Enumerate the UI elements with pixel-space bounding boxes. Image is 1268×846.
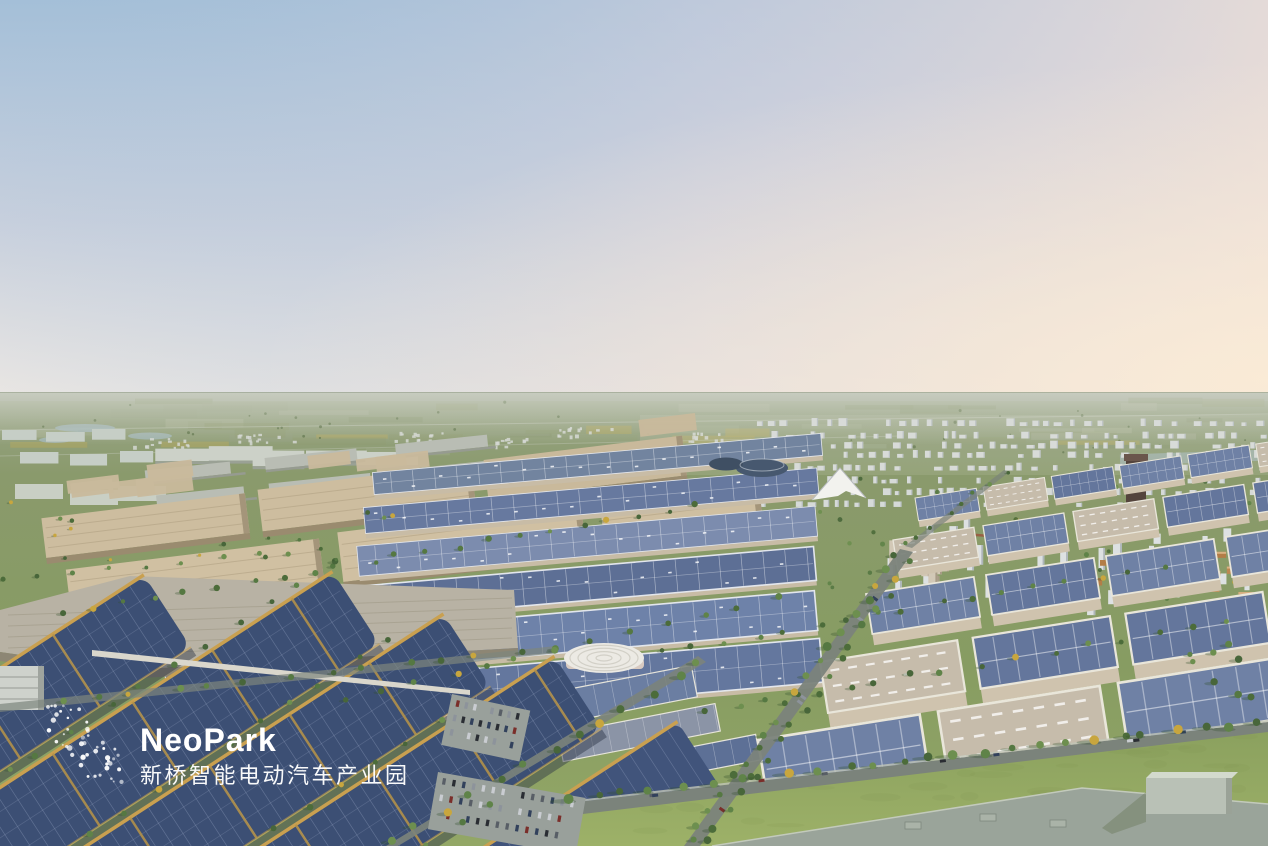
lawn-mottle bbox=[633, 828, 668, 834]
tree bbox=[882, 565, 890, 573]
logo-dot bbox=[50, 705, 53, 708]
skylight bbox=[647, 535, 651, 537]
tree bbox=[924, 752, 933, 761]
block-shade bbox=[802, 501, 803, 507]
tree bbox=[1136, 731, 1144, 739]
tree bbox=[1107, 549, 1111, 553]
tree bbox=[221, 542, 226, 547]
tree bbox=[153, 596, 158, 601]
tree bbox=[816, 691, 822, 697]
skylight bbox=[607, 466, 611, 468]
skylight bbox=[439, 475, 443, 477]
logo-dot bbox=[105, 766, 110, 771]
tree bbox=[802, 672, 809, 679]
logo-dot bbox=[62, 744, 64, 746]
tree bbox=[603, 517, 609, 523]
tree bbox=[179, 561, 183, 565]
tree bbox=[32, 753, 38, 759]
tree bbox=[1190, 659, 1195, 664]
block-shade bbox=[911, 490, 912, 495]
tree bbox=[121, 599, 125, 603]
skylight bbox=[703, 532, 707, 534]
tree bbox=[852, 610, 860, 618]
skylight bbox=[467, 477, 471, 479]
tree bbox=[728, 807, 734, 813]
tree bbox=[898, 609, 904, 615]
skylight bbox=[710, 497, 714, 499]
tree bbox=[907, 670, 914, 677]
skylight bbox=[626, 500, 630, 502]
skylight bbox=[664, 614, 668, 616]
tree bbox=[785, 768, 794, 777]
neopark-logo: NeoPark 新桥智能电动汽车产业园 bbox=[40, 700, 410, 794]
skylight bbox=[524, 621, 528, 623]
logo-dot bbox=[53, 704, 56, 707]
tree bbox=[950, 511, 954, 515]
tree bbox=[519, 649, 525, 655]
tree bbox=[765, 758, 771, 764]
shed bbox=[70, 454, 107, 466]
tree bbox=[312, 570, 318, 576]
skylight bbox=[737, 481, 741, 483]
skylight bbox=[725, 582, 729, 584]
skylight bbox=[534, 535, 538, 537]
skylight bbox=[579, 466, 583, 468]
skylight bbox=[774, 446, 778, 448]
round-building-roof bbox=[564, 643, 644, 673]
tree bbox=[388, 837, 396, 845]
tree bbox=[63, 556, 67, 560]
skylight bbox=[562, 531, 566, 533]
lawn-mottle bbox=[676, 803, 704, 812]
tree bbox=[660, 648, 665, 653]
tree bbox=[221, 554, 226, 559]
logo-dot bbox=[87, 734, 90, 737]
tree bbox=[627, 628, 633, 634]
tree bbox=[564, 794, 574, 804]
lawn-mottle bbox=[1230, 785, 1246, 793]
tree bbox=[499, 776, 506, 783]
block-shade bbox=[920, 488, 921, 495]
logo-dot bbox=[59, 710, 62, 713]
tree bbox=[1210, 649, 1216, 655]
lawn-mottle bbox=[767, 823, 805, 827]
block-shade bbox=[858, 503, 859, 507]
lawn-mottle bbox=[970, 771, 1013, 778]
tree bbox=[587, 638, 593, 644]
tree bbox=[903, 541, 907, 545]
skylight bbox=[523, 469, 527, 471]
skylight bbox=[693, 630, 697, 632]
skylight bbox=[508, 553, 512, 555]
tree bbox=[358, 665, 364, 671]
tree bbox=[1234, 691, 1242, 699]
skylight bbox=[528, 576, 532, 578]
skylight bbox=[690, 456, 694, 458]
tree bbox=[980, 664, 985, 669]
tree bbox=[582, 523, 588, 529]
tree bbox=[782, 700, 788, 706]
tree bbox=[668, 510, 672, 514]
tree bbox=[411, 679, 417, 685]
tree bbox=[837, 628, 845, 636]
logo-subtitle: 新桥智能电动汽车产业园 bbox=[140, 765, 410, 787]
tree bbox=[202, 644, 208, 650]
skylight bbox=[397, 566, 401, 568]
tree bbox=[391, 551, 397, 557]
tree bbox=[616, 705, 624, 713]
tree bbox=[1119, 640, 1124, 645]
tree bbox=[70, 518, 74, 522]
tree bbox=[298, 538, 302, 542]
skylight bbox=[402, 517, 406, 519]
tree bbox=[487, 801, 494, 808]
tree bbox=[53, 534, 56, 537]
tree bbox=[409, 822, 416, 829]
distant-town-block bbox=[145, 445, 149, 449]
skylight bbox=[480, 560, 484, 562]
tree bbox=[294, 583, 299, 588]
skylight bbox=[717, 446, 721, 448]
residential-block bbox=[890, 479, 898, 483]
logo-dot bbox=[86, 729, 90, 733]
skylight bbox=[719, 606, 723, 608]
tree bbox=[858, 621, 865, 628]
tree bbox=[319, 547, 323, 551]
tree bbox=[358, 654, 363, 659]
tree bbox=[239, 679, 246, 686]
shed bbox=[155, 449, 217, 462]
tree bbox=[1098, 568, 1102, 572]
tree bbox=[70, 571, 75, 576]
lawn-mottle bbox=[1148, 745, 1191, 750]
tree bbox=[692, 501, 698, 507]
tree bbox=[738, 774, 746, 782]
tree bbox=[827, 674, 832, 679]
tree bbox=[374, 560, 378, 564]
logo-dot bbox=[93, 775, 96, 778]
logo-dot bbox=[62, 705, 65, 708]
tree bbox=[743, 762, 749, 768]
tree bbox=[866, 596, 874, 604]
shed bbox=[46, 432, 85, 442]
tree bbox=[847, 541, 851, 545]
block-shade bbox=[898, 491, 899, 495]
logo-dot bbox=[79, 763, 84, 768]
skylight bbox=[750, 681, 754, 683]
tree bbox=[705, 808, 711, 814]
skylight bbox=[664, 657, 668, 659]
tree bbox=[1054, 651, 1059, 656]
skylight bbox=[640, 576, 644, 578]
skylight bbox=[653, 486, 657, 488]
block-shade bbox=[857, 476, 858, 483]
tower-shade bbox=[1103, 548, 1105, 570]
tree bbox=[692, 822, 699, 829]
logo-dot bbox=[96, 746, 99, 749]
tree bbox=[107, 566, 111, 570]
tree bbox=[267, 537, 270, 540]
tree bbox=[1224, 619, 1229, 624]
skylight bbox=[753, 577, 757, 579]
tree bbox=[1235, 655, 1242, 662]
logo-dot bbox=[70, 753, 74, 757]
skylight bbox=[374, 512, 378, 514]
logo-dot bbox=[54, 712, 59, 717]
logo-dot bbox=[105, 755, 110, 760]
tree bbox=[1036, 741, 1044, 749]
logo-dot bbox=[46, 705, 50, 709]
tree bbox=[948, 750, 958, 760]
rooftop-vent bbox=[980, 814, 996, 821]
skylight bbox=[780, 563, 784, 565]
tree bbox=[872, 583, 878, 589]
tree bbox=[144, 566, 148, 570]
distant-town-block bbox=[133, 446, 137, 450]
shed bbox=[20, 452, 58, 464]
skylight bbox=[681, 492, 685, 494]
block-shade bbox=[1081, 503, 1082, 507]
small-building-top bbox=[1146, 772, 1238, 778]
tree bbox=[470, 653, 476, 659]
skylight bbox=[494, 465, 498, 467]
tree bbox=[179, 589, 185, 595]
tree bbox=[754, 774, 761, 781]
skylight bbox=[695, 561, 699, 563]
logo-dot bbox=[81, 736, 85, 740]
tree bbox=[253, 578, 258, 583]
tree bbox=[757, 745, 763, 751]
skylight bbox=[431, 518, 435, 520]
tree bbox=[1084, 552, 1089, 557]
lawn-mottle bbox=[960, 792, 978, 801]
tree bbox=[914, 535, 918, 539]
logo-dot bbox=[105, 762, 108, 765]
logo-dot bbox=[85, 721, 88, 724]
tree bbox=[828, 581, 832, 585]
tree bbox=[1210, 678, 1217, 685]
logo-dot bbox=[77, 707, 81, 711]
block-shade bbox=[900, 501, 901, 506]
block-shade bbox=[979, 478, 980, 484]
tree bbox=[270, 599, 275, 604]
skylight bbox=[731, 530, 735, 532]
tree bbox=[257, 551, 262, 556]
tree bbox=[1173, 725, 1182, 734]
lawn-mottle bbox=[1203, 763, 1239, 768]
tree bbox=[820, 622, 825, 627]
logo-dot bbox=[119, 780, 123, 784]
tree bbox=[704, 836, 712, 844]
tree bbox=[439, 717, 445, 723]
tree bbox=[868, 570, 872, 574]
tree bbox=[902, 758, 908, 764]
skylight bbox=[765, 484, 769, 486]
tree bbox=[722, 641, 727, 646]
block-shade bbox=[876, 476, 877, 483]
tree bbox=[551, 647, 558, 654]
residential-block bbox=[883, 488, 891, 495]
logo-dot bbox=[101, 741, 105, 745]
tree bbox=[198, 554, 201, 557]
skylight bbox=[496, 673, 500, 675]
skylight bbox=[500, 577, 504, 579]
shed bbox=[120, 451, 153, 462]
skylight bbox=[514, 511, 518, 513]
logo-dot bbox=[112, 757, 115, 760]
tree bbox=[858, 477, 862, 481]
logo-dot bbox=[67, 717, 70, 720]
skylight bbox=[383, 478, 387, 480]
tree bbox=[390, 513, 395, 518]
block-shade bbox=[1224, 479, 1225, 484]
tree bbox=[871, 530, 875, 534]
tree bbox=[486, 535, 492, 541]
logo-dot bbox=[51, 718, 56, 723]
tree bbox=[8, 767, 13, 772]
tree bbox=[315, 683, 320, 688]
block-shade bbox=[874, 499, 875, 507]
logo-dot bbox=[113, 748, 116, 751]
skylight bbox=[597, 496, 601, 498]
tree bbox=[595, 719, 604, 728]
logo-dot bbox=[80, 755, 85, 760]
tree bbox=[109, 558, 112, 561]
tree bbox=[870, 680, 876, 686]
logo-dot bbox=[113, 781, 115, 783]
tree bbox=[708, 825, 716, 833]
logo-dot bbox=[102, 747, 105, 750]
tree bbox=[1030, 583, 1035, 588]
tree bbox=[702, 708, 708, 714]
skylight bbox=[608, 618, 612, 620]
tree bbox=[458, 546, 464, 552]
lawn-mottle bbox=[908, 782, 947, 791]
tree bbox=[1, 577, 6, 582]
arena-roof bbox=[709, 458, 743, 471]
tree bbox=[733, 605, 739, 611]
logo-text-block: NeoPark 新桥智能电动汽车产业园 bbox=[140, 724, 410, 787]
skylight bbox=[581, 632, 585, 634]
tree bbox=[838, 517, 843, 522]
tree bbox=[87, 831, 93, 837]
skylight bbox=[412, 485, 416, 487]
tree bbox=[643, 787, 651, 795]
tree bbox=[959, 502, 963, 506]
tree bbox=[907, 558, 913, 564]
tree bbox=[456, 671, 462, 677]
skylight bbox=[570, 506, 574, 508]
logo-dot bbox=[116, 754, 119, 757]
tree bbox=[597, 792, 603, 798]
lawn-mottle bbox=[932, 795, 955, 801]
logo-dot bbox=[82, 741, 86, 745]
tree bbox=[121, 811, 127, 817]
tree bbox=[171, 661, 177, 667]
tree bbox=[334, 558, 337, 561]
skylight bbox=[554, 639, 558, 641]
tree bbox=[1163, 565, 1168, 570]
tree bbox=[554, 746, 562, 754]
tree bbox=[690, 836, 696, 842]
tree bbox=[408, 659, 415, 666]
tree bbox=[1225, 641, 1232, 648]
tree bbox=[970, 596, 976, 602]
tree bbox=[804, 707, 811, 714]
skylight bbox=[676, 543, 680, 545]
tree bbox=[677, 671, 686, 680]
tree bbox=[464, 791, 471, 798]
tree bbox=[651, 691, 659, 699]
skylight bbox=[486, 513, 490, 515]
tree bbox=[288, 674, 294, 680]
skylight bbox=[777, 626, 781, 628]
block-shade bbox=[838, 500, 839, 507]
skylight bbox=[424, 558, 428, 560]
tower-shade bbox=[981, 545, 983, 565]
tree bbox=[892, 576, 899, 583]
logo-dot bbox=[47, 728, 51, 732]
tree bbox=[665, 620, 671, 626]
tree bbox=[762, 697, 767, 702]
tree bbox=[365, 510, 370, 515]
tree bbox=[758, 635, 763, 640]
tree bbox=[999, 590, 1004, 595]
tree bbox=[1085, 640, 1091, 646]
tree bbox=[823, 642, 832, 651]
block-shade bbox=[828, 500, 829, 507]
tree bbox=[872, 605, 879, 612]
lawn-mottle bbox=[1056, 763, 1078, 768]
tree bbox=[890, 552, 896, 558]
block-shade bbox=[885, 480, 886, 484]
tree bbox=[1061, 579, 1066, 584]
tree bbox=[214, 585, 220, 591]
skylight bbox=[452, 558, 456, 560]
sunset-glow bbox=[0, 0, 1268, 397]
tree bbox=[518, 533, 523, 538]
lawn-mottle bbox=[860, 793, 901, 801]
logo-dot bbox=[70, 709, 72, 711]
shed bbox=[2, 430, 37, 440]
tree bbox=[880, 542, 885, 547]
tree bbox=[843, 617, 849, 623]
logo-dot bbox=[87, 775, 90, 778]
tree bbox=[786, 721, 792, 727]
block-shade bbox=[941, 477, 942, 483]
tree bbox=[282, 575, 288, 581]
logo-dot bbox=[65, 745, 68, 748]
tree bbox=[692, 659, 699, 666]
tree bbox=[459, 819, 466, 826]
skylight bbox=[802, 450, 806, 452]
tree bbox=[760, 732, 767, 739]
tree bbox=[35, 574, 40, 579]
tree bbox=[848, 762, 856, 770]
tree bbox=[271, 825, 277, 831]
block-shade bbox=[910, 476, 911, 483]
tree bbox=[869, 762, 876, 769]
dark-tower-cap bbox=[1124, 454, 1148, 461]
residential-block bbox=[894, 501, 902, 506]
tree bbox=[1224, 723, 1233, 732]
skylight bbox=[668, 572, 672, 574]
tree bbox=[378, 688, 384, 694]
tree bbox=[307, 804, 313, 810]
skylight bbox=[746, 452, 750, 454]
skylight bbox=[778, 678, 782, 680]
skylight bbox=[585, 581, 589, 583]
